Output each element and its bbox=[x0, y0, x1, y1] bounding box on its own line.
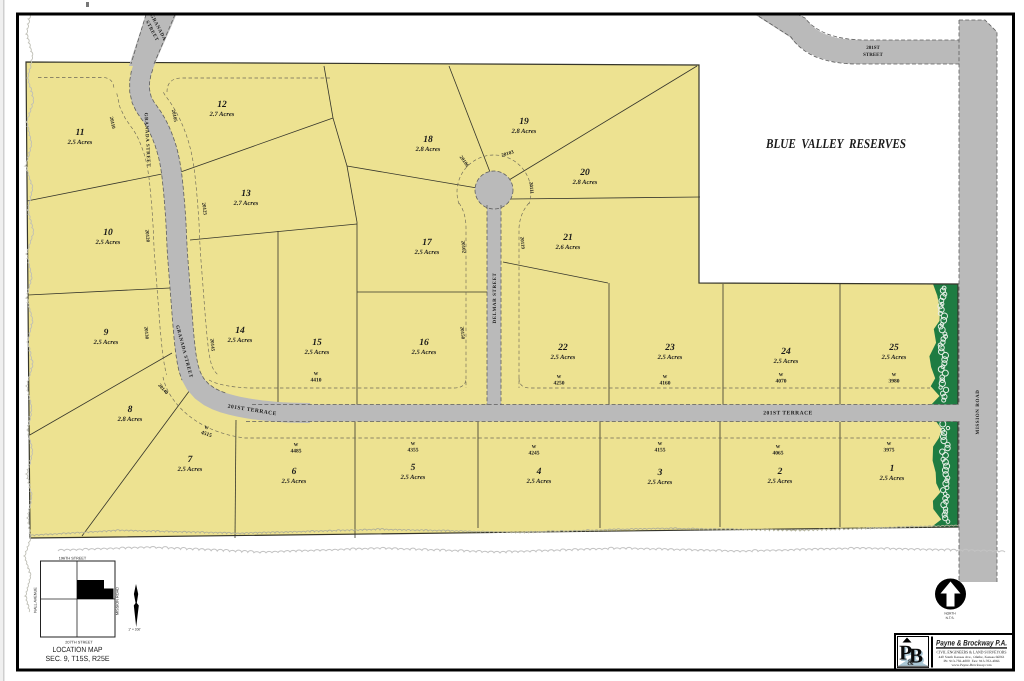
svg-text:2.5 Acres: 2.5 Acres bbox=[400, 474, 426, 481]
svg-text:10: 10 bbox=[103, 228, 113, 238]
svg-text:11: 11 bbox=[76, 128, 85, 138]
svg-text:20: 20 bbox=[579, 168, 590, 178]
svg-text:2.5 Acres: 2.5 Acres bbox=[550, 354, 576, 361]
svg-text:2.5 Acres: 2.5 Acres bbox=[227, 337, 253, 344]
svg-text:www.Payne-Brockway.com: www.Payne-Brockway.com bbox=[952, 663, 992, 667]
svg-text:4: 4 bbox=[536, 467, 542, 477]
svg-text:2.5 Acres: 2.5 Acres bbox=[879, 475, 905, 482]
svg-text:20145: 20145 bbox=[208, 338, 215, 351]
svg-text:CIVIL ENGINEERS & LAND SURVEYO: CIVIL ENGINEERS & LAND SURVEYORS bbox=[937, 650, 1008, 655]
svg-text:14: 14 bbox=[235, 326, 245, 336]
svg-text:20119: 20119 bbox=[518, 237, 525, 250]
svg-text:1" = 200': 1" = 200' bbox=[128, 628, 141, 632]
svg-text:2: 2 bbox=[777, 467, 783, 477]
svg-text:23: 23 bbox=[664, 343, 675, 353]
svg-text:W: W bbox=[779, 372, 784, 377]
svg-text:2.8 Acres: 2.8 Acres bbox=[117, 416, 143, 423]
svg-text:25: 25 bbox=[888, 343, 899, 353]
svg-text:2.5 Acres: 2.5 Acres bbox=[177, 466, 203, 473]
svg-text:W: W bbox=[892, 372, 897, 377]
svg-text:1: 1 bbox=[890, 464, 895, 474]
svg-text:2.5 Acres: 2.5 Acres bbox=[281, 478, 307, 485]
svg-text:4485: 4485 bbox=[291, 449, 302, 455]
svg-text:18: 18 bbox=[423, 135, 433, 145]
svg-text:24: 24 bbox=[780, 347, 791, 357]
svg-text:2.7 Acres: 2.7 Acres bbox=[209, 111, 235, 118]
svg-text:W: W bbox=[663, 374, 668, 379]
svg-text:207TH STREET: 207TH STREET bbox=[65, 641, 93, 645]
svg-text:6: 6 bbox=[292, 467, 297, 477]
svg-text:20130: 20130 bbox=[142, 326, 149, 339]
svg-text:3980: 3980 bbox=[889, 379, 900, 385]
svg-text:20120: 20120 bbox=[143, 229, 150, 242]
svg-text:Payne & Brockway P.A.: Payne & Brockway P.A. bbox=[936, 639, 1007, 648]
svg-text:15: 15 bbox=[312, 338, 322, 348]
svg-text:19: 19 bbox=[519, 117, 529, 127]
svg-text:2.7 Acres: 2.7 Acres bbox=[233, 200, 259, 207]
svg-text:16: 16 bbox=[419, 338, 429, 348]
svg-text:4160: 4160 bbox=[660, 381, 671, 387]
svg-text:DELMAR STREET: DELMAR STREET bbox=[492, 272, 498, 323]
svg-text:NORTH: NORTH bbox=[944, 612, 956, 616]
svg-text:3975: 3975 bbox=[884, 448, 895, 454]
svg-text:2.8 Acres: 2.8 Acres bbox=[572, 179, 598, 186]
svg-text:3: 3 bbox=[657, 468, 663, 478]
svg-text:MISSION ROAD: MISSION ROAD bbox=[116, 587, 120, 615]
svg-text:2.8 Acres: 2.8 Acres bbox=[415, 146, 441, 153]
svg-text:4410: 4410 bbox=[311, 378, 322, 384]
svg-text:20102: 20102 bbox=[459, 240, 466, 253]
svg-text:W: W bbox=[887, 441, 892, 446]
svg-text:2.5 Acres: 2.5 Acres bbox=[767, 478, 793, 485]
svg-text:4245: 4245 bbox=[529, 451, 540, 457]
svg-text:2.5 Acres: 2.5 Acres bbox=[657, 354, 683, 361]
svg-text:2.6 Acres: 2.6 Acres bbox=[555, 244, 581, 251]
svg-text:BLUE VALLEY RESERVES: BLUE VALLEY RESERVES bbox=[765, 136, 906, 151]
svg-text:4070: 4070 bbox=[776, 379, 787, 385]
svg-text:N.T.S.: N.T.S. bbox=[946, 616, 955, 620]
svg-text:196TH STREET: 196TH STREET bbox=[59, 557, 87, 561]
svg-text:W: W bbox=[294, 442, 299, 447]
svg-text:STREET: STREET bbox=[863, 52, 883, 58]
svg-text:17: 17 bbox=[422, 238, 433, 248]
svg-text:2.5 Acres: 2.5 Acres bbox=[95, 239, 121, 246]
svg-text:2.5 Acres: 2.5 Acres bbox=[304, 349, 330, 356]
svg-text:9: 9 bbox=[104, 328, 109, 338]
svg-text:MISSION ROAD: MISSION ROAD bbox=[975, 390, 981, 435]
svg-text:W: W bbox=[532, 444, 537, 449]
svg-text:201ST: 201ST bbox=[866, 45, 880, 51]
svg-text:4355: 4355 bbox=[408, 448, 419, 454]
svg-text:&: & bbox=[907, 657, 914, 667]
svg-text:W: W bbox=[776, 444, 781, 449]
svg-text:201ST TERRACE: 201ST TERRACE bbox=[763, 411, 813, 417]
svg-text:12: 12 bbox=[217, 100, 227, 110]
svg-text:8: 8 bbox=[128, 405, 133, 415]
svg-text:20111: 20111 bbox=[527, 182, 534, 195]
svg-text:2.5 Acres: 2.5 Acres bbox=[414, 249, 440, 256]
svg-text:4155: 4155 bbox=[655, 448, 666, 454]
svg-text:W: W bbox=[314, 371, 319, 376]
svg-text:2.5 Acres: 2.5 Acres bbox=[526, 478, 552, 485]
svg-text:2.5 Acres: 2.5 Acres bbox=[647, 479, 673, 486]
svg-text:2.5 Acres: 2.5 Acres bbox=[881, 354, 907, 361]
svg-text:4065: 4065 bbox=[773, 451, 784, 457]
svg-text:2.8 Acres: 2.8 Acres bbox=[511, 128, 537, 135]
svg-text:2.5 Acres: 2.5 Acres bbox=[773, 358, 799, 365]
svg-text:W: W bbox=[658, 441, 663, 446]
svg-text:4250: 4250 bbox=[554, 381, 565, 387]
svg-text:W: W bbox=[411, 441, 416, 446]
svg-text:SEC. 9, T15S, R25E: SEC. 9, T15S, R25E bbox=[46, 654, 110, 663]
svg-text:2.5 Acres: 2.5 Acres bbox=[67, 139, 93, 146]
svg-text:W: W bbox=[557, 374, 562, 379]
svg-text:5: 5 bbox=[411, 463, 416, 473]
svg-text:2.5 Acres: 2.5 Acres bbox=[411, 349, 437, 356]
svg-text:22: 22 bbox=[557, 343, 568, 353]
svg-text:13: 13 bbox=[241, 189, 251, 199]
svg-text:2.5 Acres: 2.5 Acres bbox=[93, 339, 119, 346]
svg-text:LOCATION MAP: LOCATION MAP bbox=[53, 645, 103, 654]
svg-text:20150: 20150 bbox=[458, 326, 465, 339]
svg-text:NALL AVENUE: NALL AVENUE bbox=[34, 587, 38, 613]
svg-text:21: 21 bbox=[562, 233, 573, 243]
